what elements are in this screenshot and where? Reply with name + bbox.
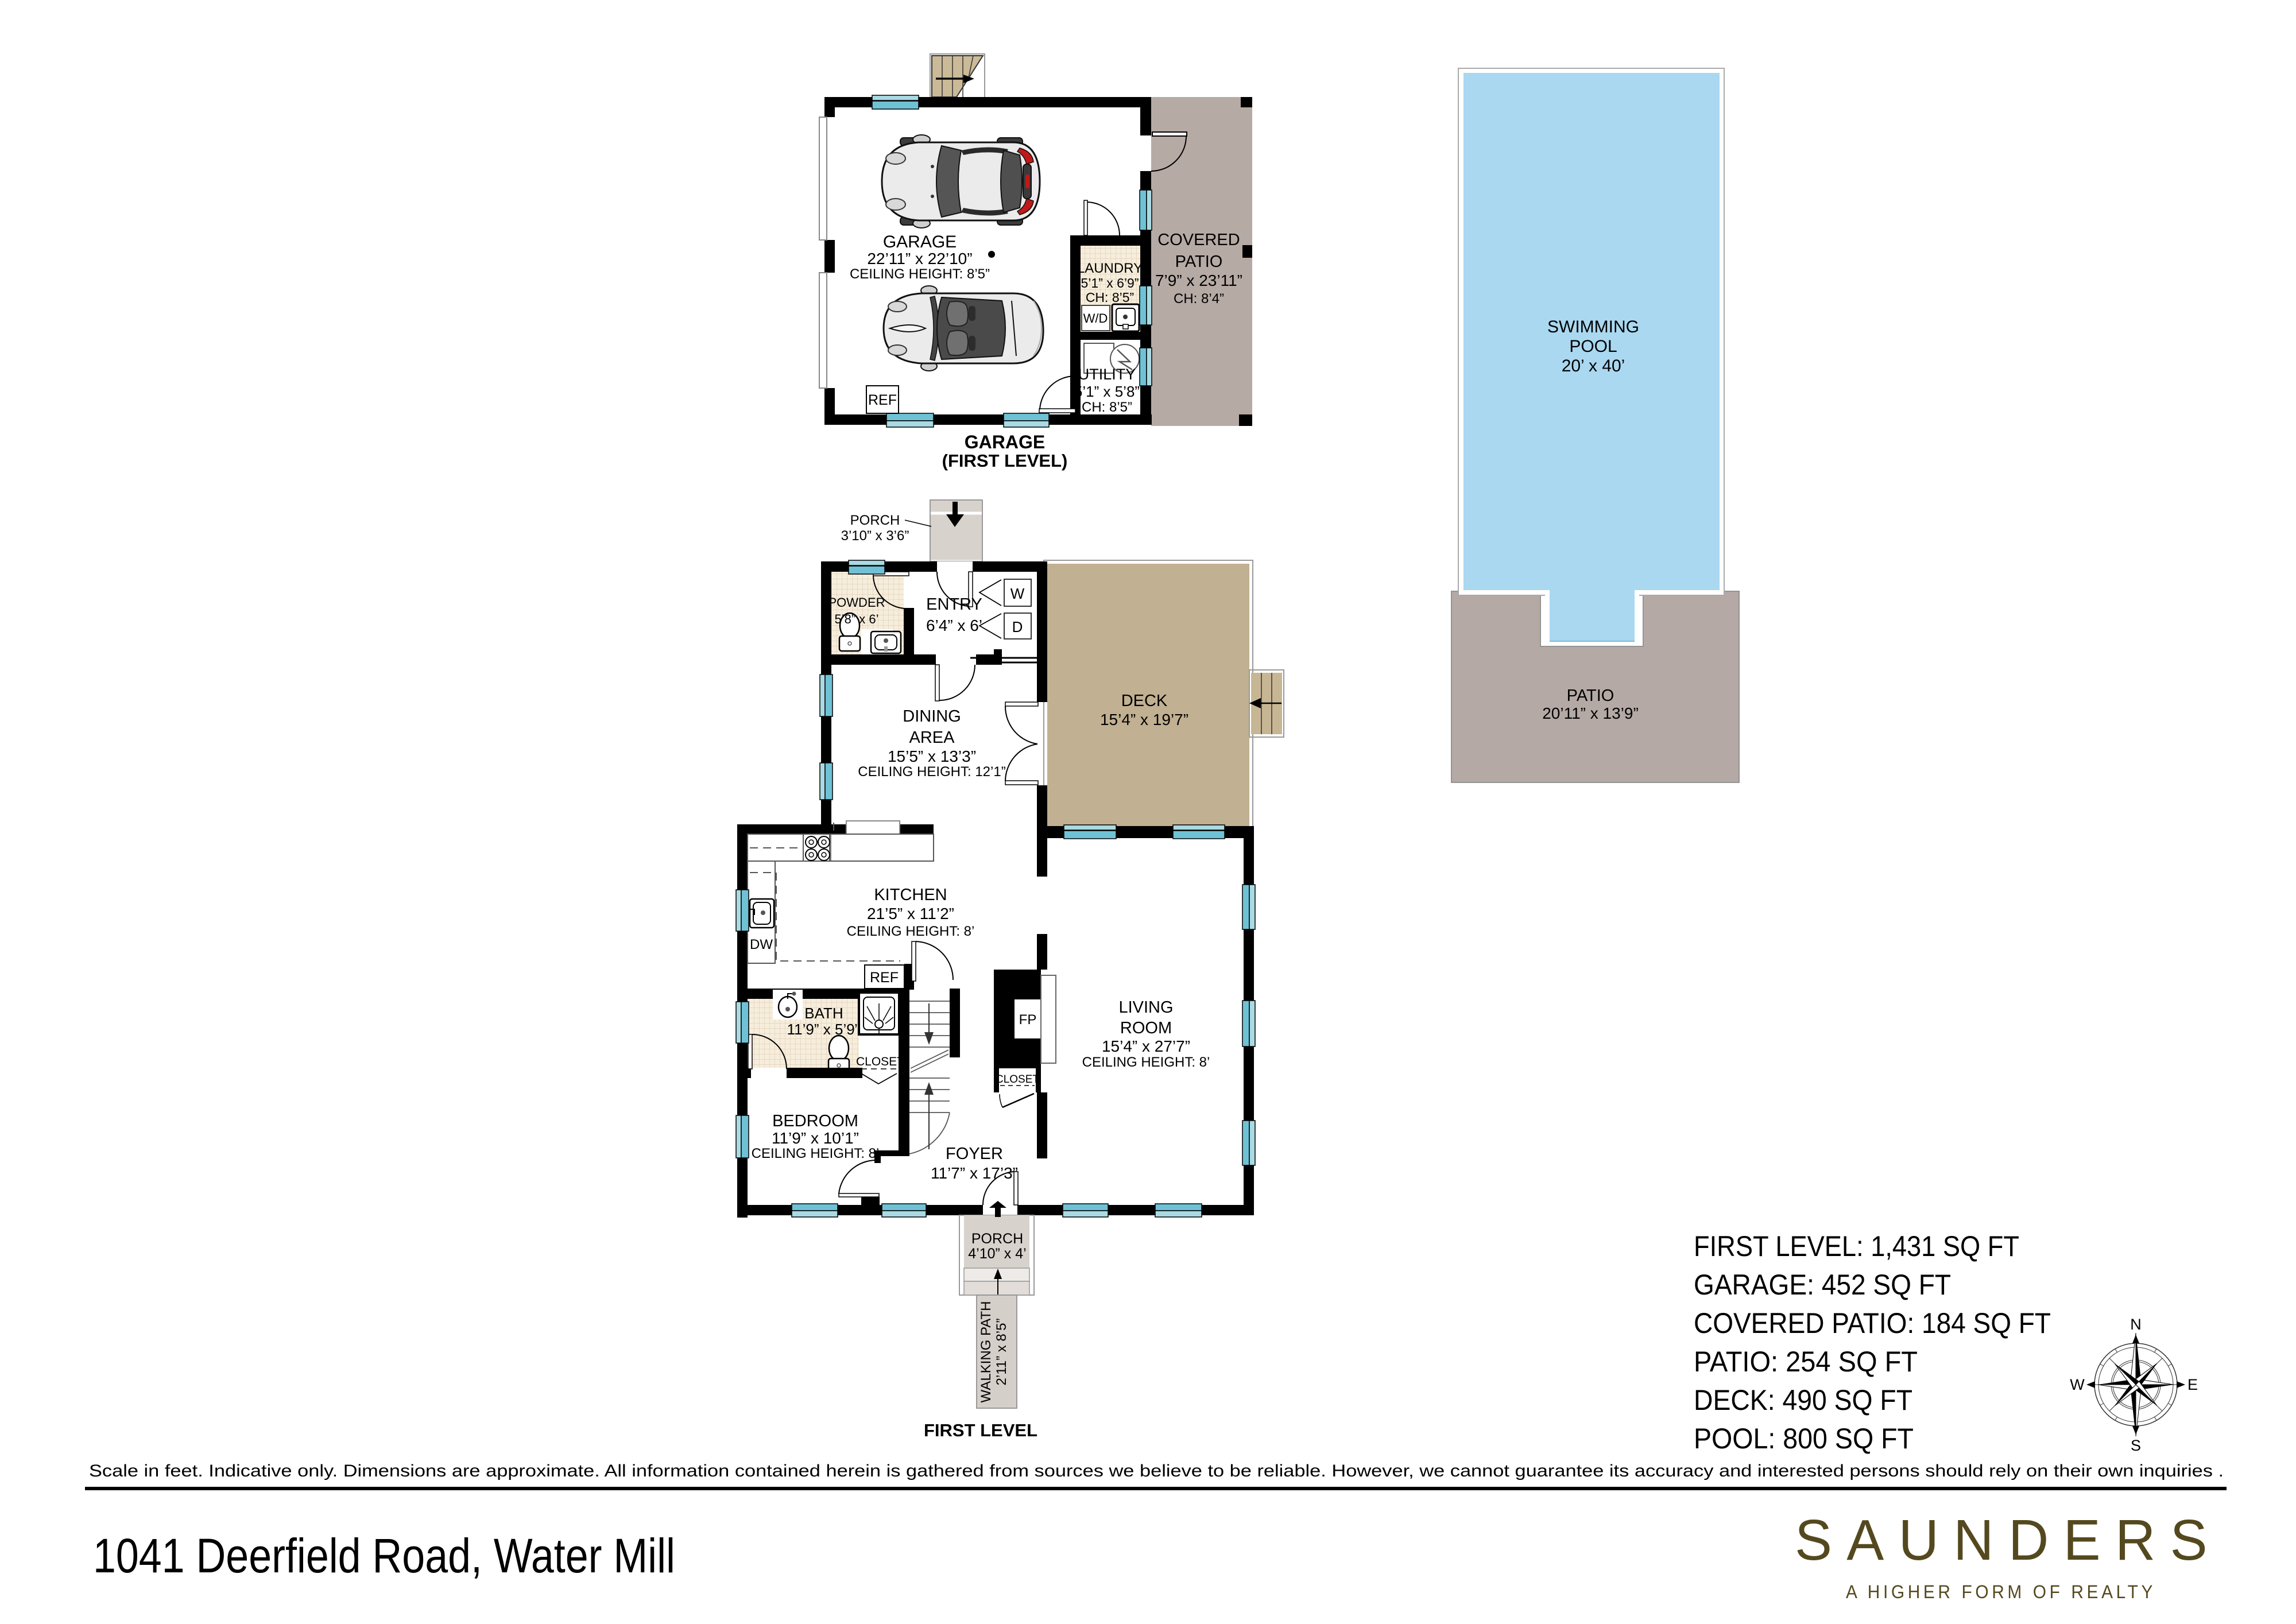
svg-text:PATIO: PATIO [1567,687,1614,705]
svg-text:FP: FP [1019,1012,1037,1028]
svg-text:5’1” x 5’8”: 5’1” x 5’8” [1074,383,1140,400]
svg-text:15’4” x 19’7”: 15’4” x 19’7” [1100,711,1188,728]
svg-text:KITCHEN: KITCHEN [874,886,947,904]
svg-text:SWIMMING: SWIMMING [1547,317,1639,336]
svg-text:CH: 8’4”: CH: 8’4” [1174,291,1224,307]
svg-text:GARAGE: GARAGE [965,432,1045,452]
svg-text:REF: REF [870,970,899,986]
svg-text:21’5” x 11’2”: 21’5” x 11’2” [867,905,954,923]
svg-text:AREA: AREA [909,728,955,747]
svg-text:S: S [2131,1437,2141,1454]
svg-text:PATIO: 254 SQ FT: PATIO: 254 SQ FT [1694,1346,1918,1378]
svg-text:Scale in feet. Indicative only: Scale in feet. Indicative only. Dimensio… [89,1462,2224,1480]
svg-text:15’5” x 13’3”: 15’5” x 13’3” [888,747,976,765]
svg-text:CEILING HEIGHT: 8’: CEILING HEIGHT: 8’ [1082,1055,1210,1070]
svg-text:1041 Deerfield Road, Water Mil: 1041 Deerfield Road, Water Mill [93,1529,675,1583]
svg-text:20’11” x 13’9”: 20’11” x 13’9” [1542,704,1639,722]
svg-text:DECK: 490 SQ FT: DECK: 490 SQ FT [1694,1384,1912,1416]
svg-text:LAUNDRY: LAUNDRY [1077,261,1143,276]
svg-text:UTILITY: UTILITY [1078,366,1136,383]
svg-text:11’7” x 17’3”: 11’7” x 17’3” [931,1164,1018,1182]
svg-text:PATIO: PATIO [1175,253,1223,271]
svg-text:5’1” x 6’9”: 5’1” x 6’9” [1081,276,1139,290]
svg-text:FOYER: FOYER [946,1145,1003,1163]
svg-text:LIVING: LIVING [1118,998,1173,1017]
svg-text:FIRST LEVEL: 1,431 SQ FT: FIRST LEVEL: 1,431 SQ FT [1694,1230,2019,1262]
svg-text:11’9” x 10’1”: 11’9” x 10’1” [772,1129,859,1147]
svg-text:BATH: BATH [804,1005,843,1022]
svg-text:W/D: W/D [1083,311,1108,325]
svg-text:W: W [1010,585,1025,602]
svg-text:REF: REF [868,392,897,408]
svg-text:DW: DW [750,937,773,952]
svg-text:PORCH: PORCH [971,1231,1023,1247]
svg-text:CLOSET: CLOSET [996,1073,1039,1086]
svg-text:20’ x 40’: 20’ x 40’ [1562,356,1625,375]
svg-text:ENTRY: ENTRY [926,595,982,614]
svg-text:POOL: 800 SQ FT: POOL: 800 SQ FT [1694,1423,1914,1455]
svg-text:CEILING HEIGHT: 8’5”: CEILING HEIGHT: 8’5” [850,266,990,282]
svg-text:COVERED: COVERED [1157,231,1240,249]
svg-text:POWDER: POWDER [828,595,885,610]
svg-text:CEILING HEIGHT: 8’: CEILING HEIGHT: 8’ [752,1146,880,1161]
svg-text:FIRST LEVEL: FIRST LEVEL [924,1420,1037,1440]
svg-text:PORCH: PORCH [850,513,900,528]
svg-text:22’11” x 22’10”: 22’11” x 22’10” [867,250,972,268]
svg-text:CEILING HEIGHT: 12’1”: CEILING HEIGHT: 12’1” [858,764,1005,780]
svg-text:SAUNDERS: SAUNDERS [1795,1508,2222,1572]
svg-text:11’9” x 5’9”: 11’9” x 5’9” [787,1021,860,1038]
svg-text:4’10” x 4’: 4’10” x 4’ [968,1246,1026,1262]
svg-text:15’4” x 27’7”: 15’4” x 27’7” [1102,1037,1190,1055]
svg-text:E: E [2187,1376,2198,1393]
svg-text:CH: 8’5”: CH: 8’5” [1082,400,1132,415]
svg-text:DINING: DINING [903,707,961,726]
svg-text:D: D [1012,618,1023,635]
svg-text:GARAGE: 452 SQ FT: GARAGE: 452 SQ FT [1694,1269,1951,1301]
svg-text:N: N [2130,1316,2142,1333]
svg-text:6’4” x 6’: 6’4” x 6’ [926,617,982,634]
svg-text:(FIRST LEVEL): (FIRST LEVEL) [942,451,1068,471]
svg-text:GARAGE: GARAGE [883,232,957,251]
svg-text:3’10” x 3’6”: 3’10” x 3’6” [841,528,909,544]
svg-text:POOL: POOL [1569,337,1617,356]
svg-text:A HIGHER FORM OF REALTY: A HIGHER FORM OF REALTY [1846,1582,2156,1602]
svg-text:WALKING PATH: WALKING PATH [978,1301,994,1403]
svg-text:ROOM: ROOM [1120,1019,1172,1037]
svg-text:7’9” x 23’11”: 7’9” x 23’11” [1155,272,1242,289]
svg-text:2’11” x 8’5”: 2’11” x 8’5” [994,1319,1009,1386]
svg-text:CLOSET: CLOSET [856,1055,904,1068]
svg-text:BEDROOM: BEDROOM [772,1112,858,1130]
svg-text:CH: 8’5”: CH: 8’5” [1086,290,1134,305]
svg-text:5’8” x 6’: 5’8” x 6’ [834,612,878,626]
svg-text:COVERED PATIO: 184 SQ FT: COVERED PATIO: 184 SQ FT [1694,1307,2051,1339]
svg-text:DECK: DECK [1121,692,1168,710]
svg-text:CEILING HEIGHT: 8’: CEILING HEIGHT: 8’ [847,924,975,939]
svg-text:W: W [2070,1376,2085,1393]
